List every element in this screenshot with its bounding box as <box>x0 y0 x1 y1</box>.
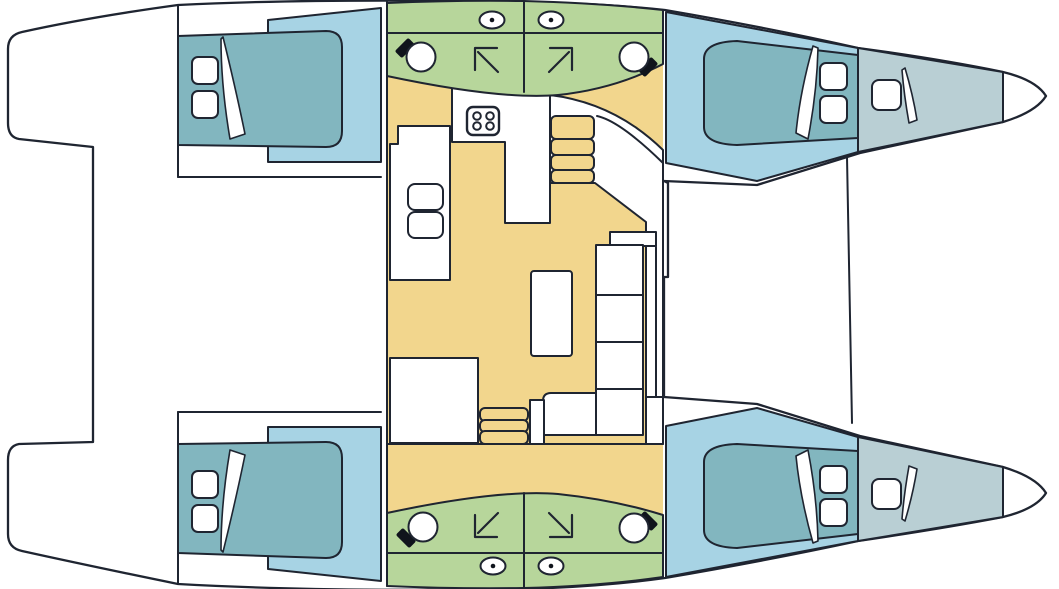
double-berth <box>704 444 858 548</box>
stairs-starboard <box>551 116 594 183</box>
double-berth <box>704 41 858 145</box>
cabin-starboard-forward <box>666 12 858 181</box>
sofa-armrest <box>530 400 544 444</box>
catamaran-deck-plan <box>0 0 1059 589</box>
pillow-icon <box>872 80 901 110</box>
pillow-icon <box>820 63 847 90</box>
bathrooms-port <box>387 493 663 588</box>
cabin-entry-niche <box>646 397 663 444</box>
double-berth <box>178 31 342 147</box>
forepeak-starboard <box>858 48 1003 152</box>
toilet-icon <box>539 12 564 29</box>
deck-plan-canvas <box>0 0 1059 589</box>
pillow-icon <box>192 57 218 84</box>
toilet-icon <box>480 12 505 29</box>
sofa-headrest <box>610 232 656 246</box>
cabin-port-forward <box>666 408 858 577</box>
pillow-icon <box>872 479 901 509</box>
bathrooms-starboard <box>387 1 663 96</box>
toilet-icon <box>481 558 506 575</box>
toilet-icon <box>539 558 564 575</box>
pillow-icon <box>820 96 847 123</box>
galley-sink-bowl <box>408 184 443 210</box>
sofa-bench <box>543 393 596 435</box>
pillow-icon <box>192 91 218 118</box>
galley-sink-bowl <box>408 212 443 238</box>
dining-table <box>531 271 572 356</box>
pillow-icon <box>820 499 847 526</box>
forward-crossbeam <box>847 157 852 423</box>
pillow-icon <box>820 466 847 493</box>
stove-icon <box>467 107 499 135</box>
pillow-icon <box>192 471 218 498</box>
aft-counter-block <box>390 358 478 443</box>
forepeak-port <box>858 437 1003 541</box>
stairs-port <box>480 408 528 444</box>
double-berth <box>178 442 342 558</box>
sofa-column <box>596 245 643 435</box>
pillow-icon <box>192 505 218 532</box>
